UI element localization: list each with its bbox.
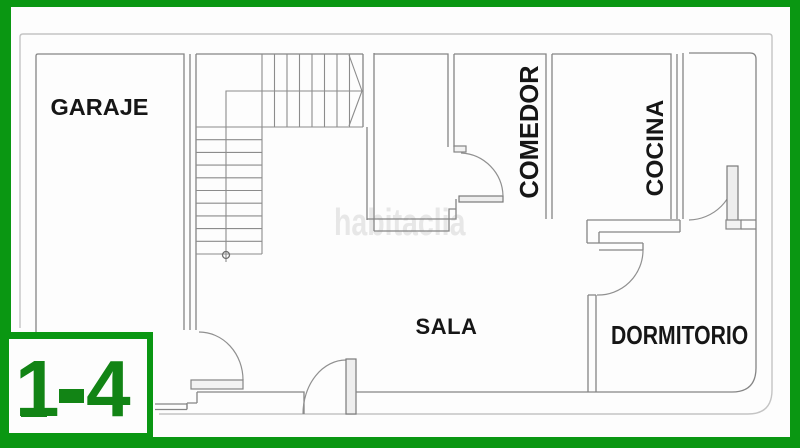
svg-text:habitaclia: habitaclia <box>334 202 466 244</box>
svg-text:GARAJE: GARAJE <box>51 94 149 120</box>
svg-text:COMEDOR: COMEDOR <box>516 65 544 198</box>
svg-text:SALA: SALA <box>416 314 478 339</box>
svg-text:DORMITORIO: DORMITORIO <box>611 322 748 351</box>
svg-text:COCINA: COCINA <box>642 99 669 196</box>
